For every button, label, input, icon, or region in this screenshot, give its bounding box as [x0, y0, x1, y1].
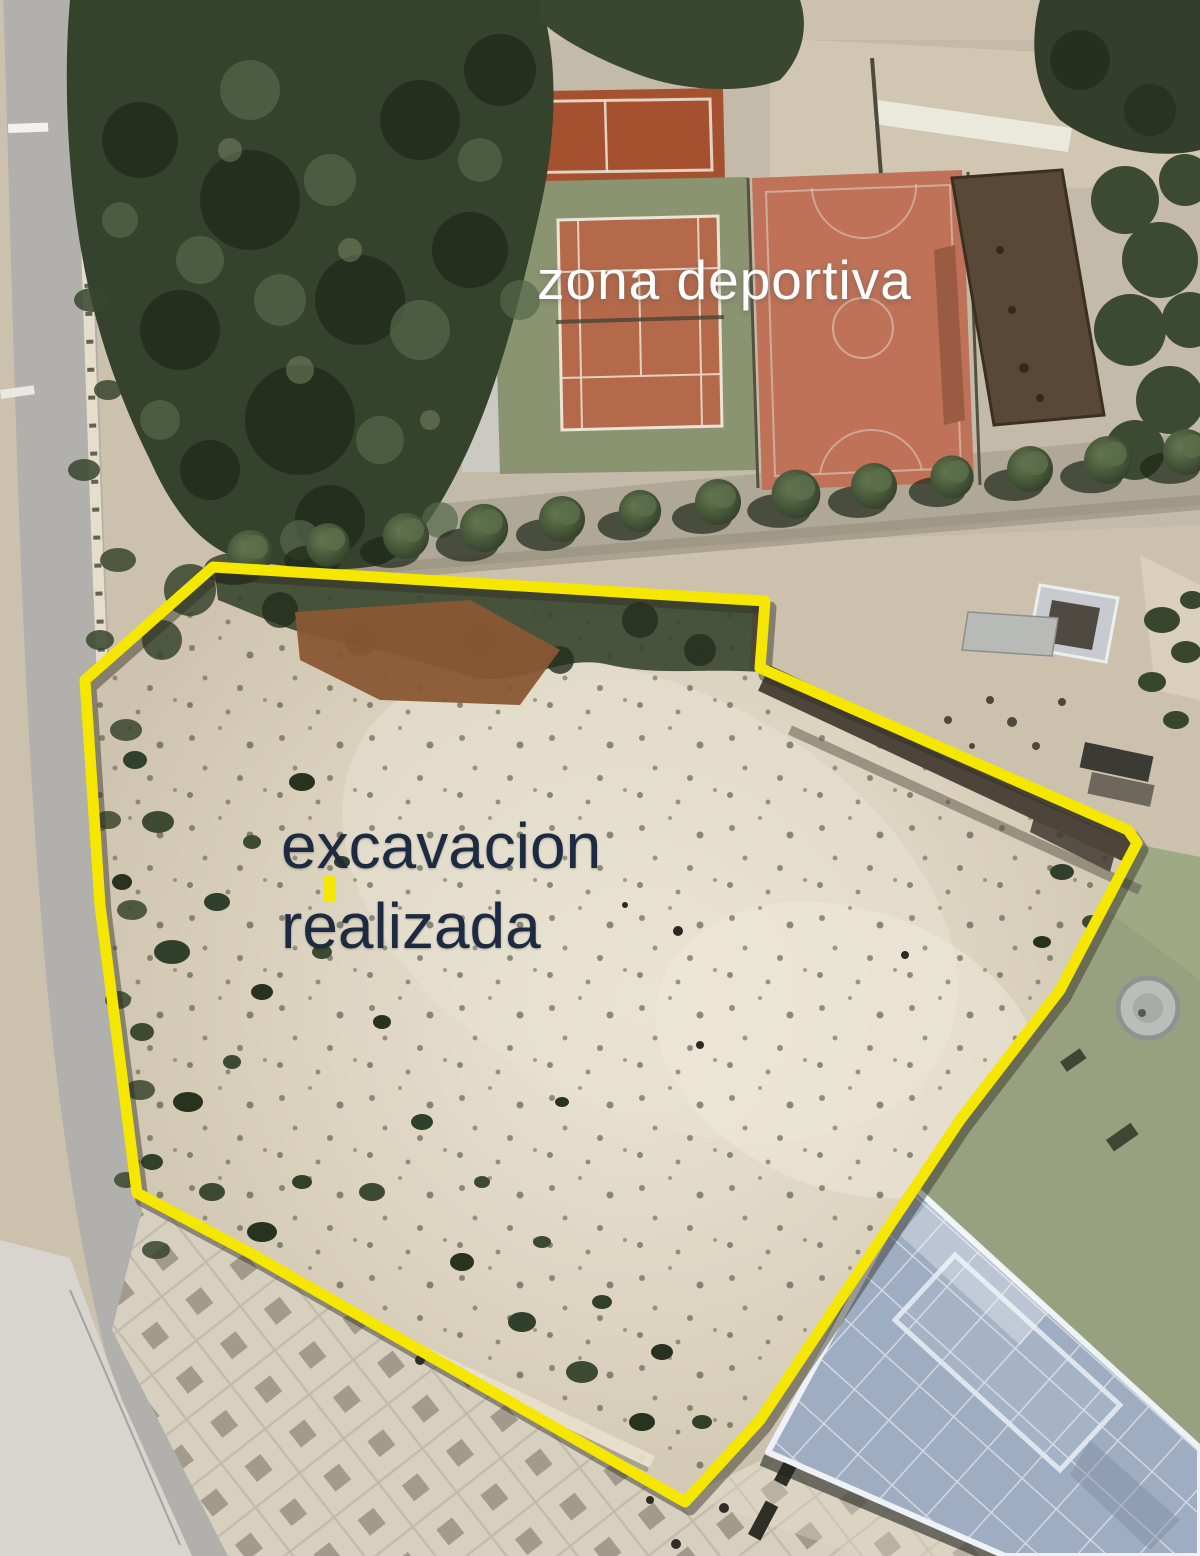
round-pool	[1118, 978, 1178, 1038]
shed-roof	[962, 612, 1058, 656]
annotated-aerial-photo: zona deportiva excavacion realizada	[0, 0, 1200, 1556]
road-marking	[8, 123, 48, 133]
excavation-label: excavacion realizada	[281, 806, 601, 966]
excavation-label-line1: excavacion	[281, 810, 601, 882]
aerial-scene	[0, 0, 1200, 1556]
sports-zone-label: zona deportiva	[537, 248, 912, 312]
excavation-label-line2: realizada	[281, 890, 541, 962]
